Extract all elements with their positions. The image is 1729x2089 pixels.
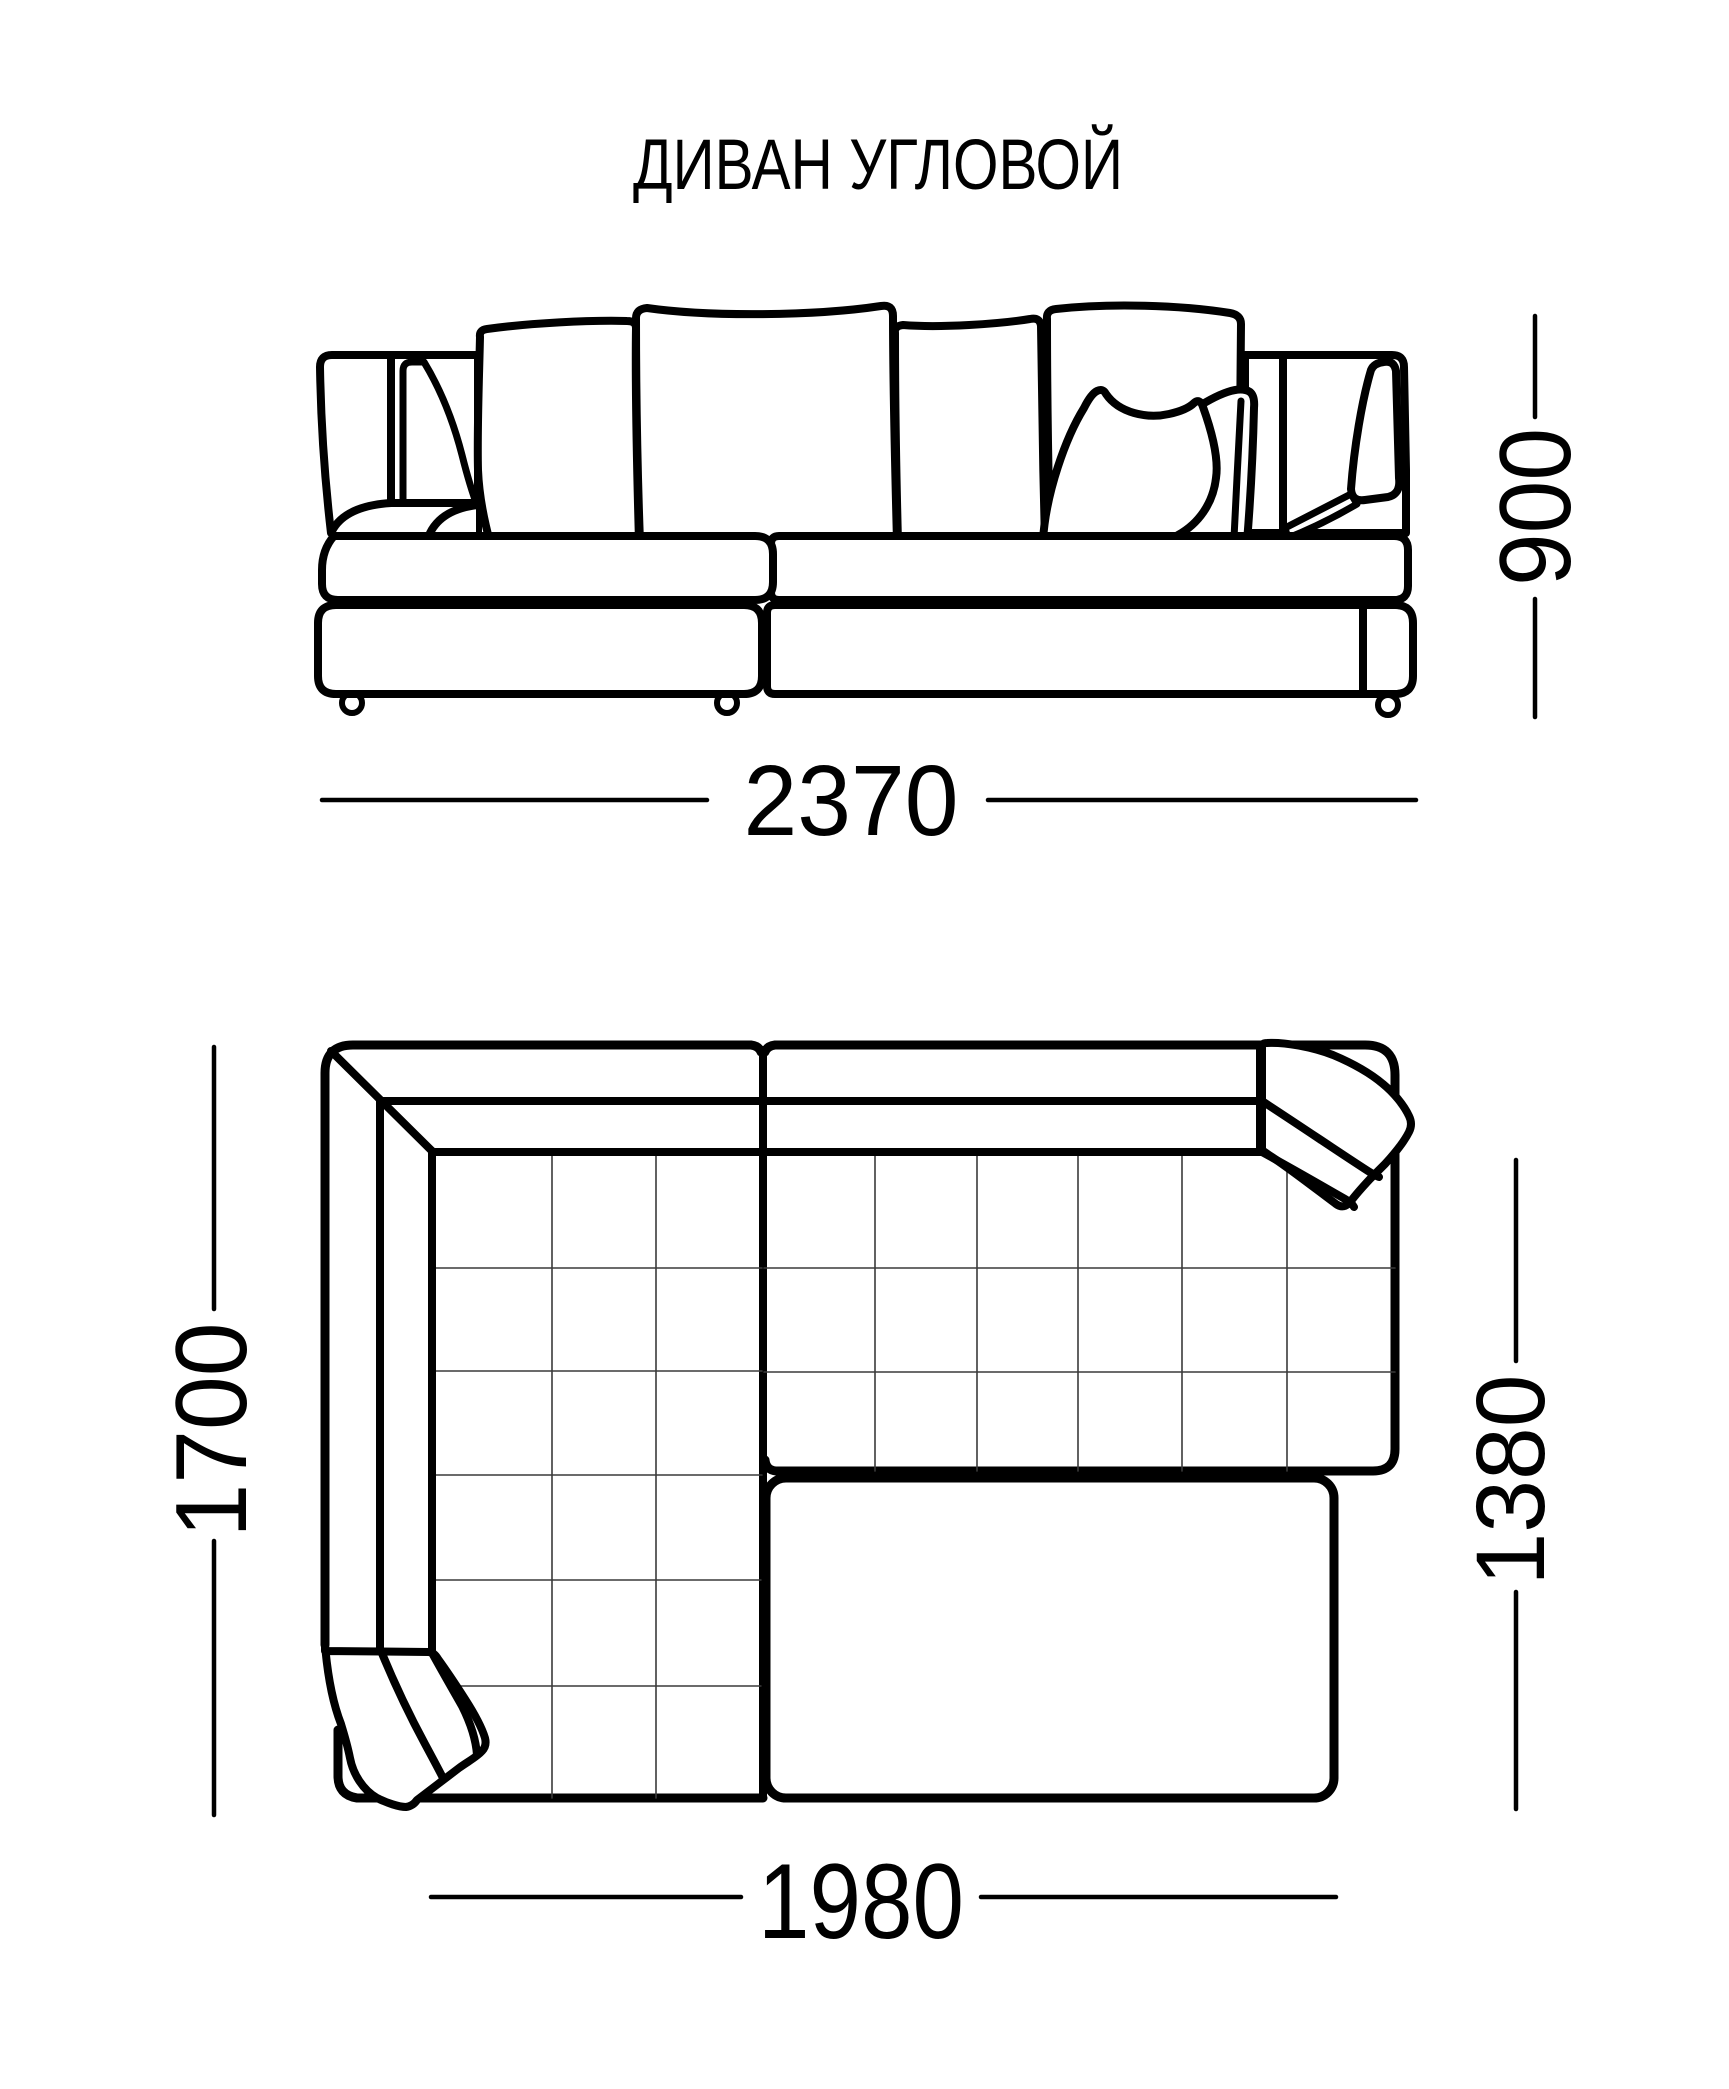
svg-text:ДИВАН УГЛОВОЙ: ДИВАН УГЛОВОЙ — [633, 123, 1123, 205]
svg-text:1980: 1980 — [758, 1841, 964, 1961]
svg-text:900: 900 — [1480, 428, 1592, 586]
svg-text:1700: 1700 — [156, 1323, 268, 1538]
svg-text:1380: 1380 — [1456, 1375, 1565, 1586]
svg-text:2370: 2370 — [744, 745, 959, 857]
